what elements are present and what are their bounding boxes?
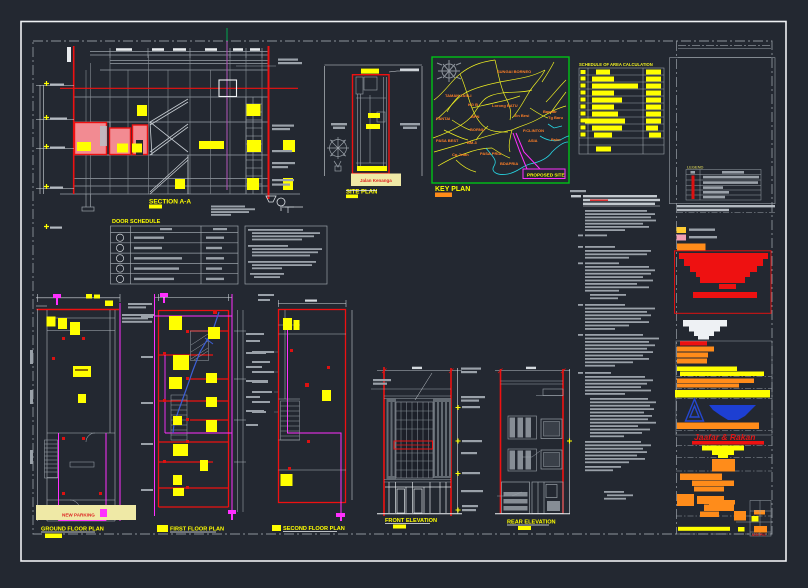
- svg-text:KEY PLAN: KEY PLAN: [435, 186, 470, 193]
- svg-text:PANTAI: PANTAI: [436, 116, 450, 121]
- svg-text:Jaafar & Rakan: Jaafar & Rakan: [694, 432, 755, 442]
- svg-text:Jalan Kenanga: Jalan Kenanga: [360, 178, 392, 183]
- svg-text:KG B: KG B: [468, 102, 478, 107]
- svg-text:SCHEDULE OF AREA CALCULATION: SCHEDULE OF AREA CALCULATION: [579, 62, 653, 67]
- svg-text:Lorong BATU: Lorong BATU: [492, 103, 518, 108]
- svg-text:DOOR SCHEDULE: DOOR SCHEDULE: [112, 219, 161, 225]
- svg-text:BPN: BPN: [471, 114, 480, 119]
- svg-text:SUNGAI BORNEO: SUNGAI BORNEO: [497, 69, 531, 74]
- svg-text:P.CLINTON: P.CLINTON: [523, 128, 544, 133]
- svg-text:BM-3: BM-3: [467, 140, 478, 145]
- svg-text:NEW PARKING: NEW PARKING: [62, 513, 95, 518]
- svg-text:Palm: Palm: [551, 137, 561, 142]
- svg-text:Cp Jelan: Cp Jelan: [452, 152, 469, 157]
- svg-text:A00 P01: A00 P01: [752, 533, 766, 537]
- svg-text:LEGEND: LEGEND: [687, 165, 704, 170]
- svg-text:PASA BEST: PASA BEST: [436, 138, 459, 143]
- svg-text:REAR ELEVATION: REAR ELEVATION: [507, 520, 556, 526]
- svg-text:TAMAN TASLI: TAMAN TASLI: [445, 93, 472, 98]
- svg-text:SECOND FLOOR PLAN: SECOND FLOOR PLAN: [283, 526, 345, 532]
- svg-text:GROUND FLOOR PLAN: GROUND FLOOR PLAN: [41, 527, 104, 533]
- svg-text:Tg Baru: Tg Baru: [548, 115, 564, 120]
- svg-text:Jln Besi: Jln Besi: [514, 113, 529, 118]
- svg-text:Bandar: Bandar: [543, 109, 557, 114]
- svg-text:PASA PRIA: PASA PRIA: [480, 151, 501, 156]
- svg-text:SECTION A-A: SECTION A-A: [149, 199, 191, 206]
- svg-text:BORNU: BORNU: [470, 127, 485, 132]
- svg-text:FIRST FLOOR PLAN: FIRST FLOOR PLAN: [170, 527, 224, 533]
- svg-text:PROPOSED SITE: PROPOSED SITE: [527, 173, 565, 178]
- svg-text:ASIA: ASIA: [528, 138, 538, 143]
- svg-text:BDAPRIA: BDAPRIA: [500, 161, 518, 166]
